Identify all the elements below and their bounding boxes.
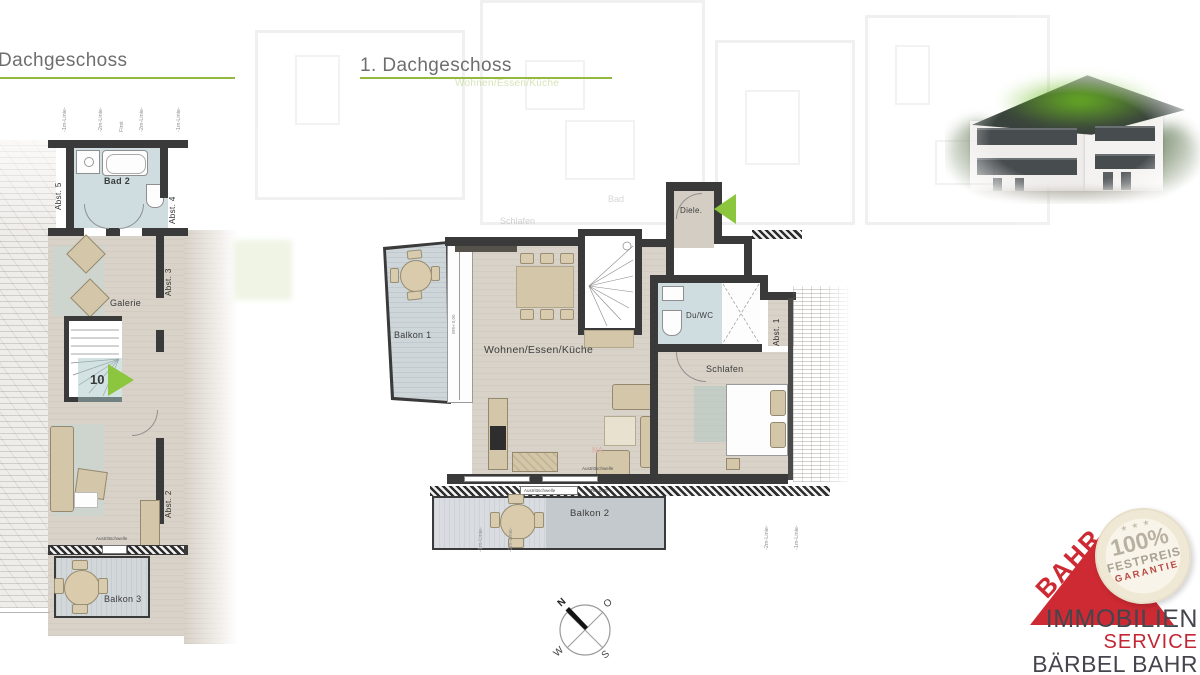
roof-line-label: -2m-Linie- [139, 92, 145, 132]
roof-fade-strip [184, 230, 238, 644]
plan-title-left: Dachgeschoss [0, 50, 127, 72]
dining-chair [560, 253, 574, 264]
window-band [542, 476, 598, 482]
room-label-bad2: Bad 2 [104, 176, 130, 186]
company-logo: BAHR ★ ★ ★ 100% FESTPREIS GARANTIE IMMOB… [1015, 508, 1200, 675]
wall [66, 140, 74, 230]
staircase [578, 229, 642, 335]
balcony-chair [72, 604, 88, 614]
garden-tint [234, 240, 292, 300]
room-label-abst2: Abst. 2 [164, 472, 173, 518]
ground-shadow [965, 190, 1170, 198]
dining-chair [520, 253, 534, 264]
room-label-balkon1: Balkon 1 [394, 330, 431, 340]
balcony-table [500, 504, 536, 540]
wall [156, 236, 164, 298]
company-line3-label: BÄRBEL BAHR [1015, 653, 1198, 675]
roof-line-label: -2m-Linie- [508, 508, 514, 552]
roof-edge-hatch [752, 230, 802, 239]
wall [650, 275, 762, 283]
wall [156, 330, 164, 352]
balcony-chair [431, 266, 440, 281]
room-label-abst5: Abst. 5 [54, 166, 63, 210]
threshold-label: Austrittschwelle [582, 466, 613, 471]
coffee-table [604, 416, 636, 446]
roof-line-label: -1m-Linie- [478, 508, 484, 552]
door-gap [120, 228, 142, 236]
ghost-furniture [745, 90, 800, 165]
roof-line-label: -1m-Linie- [176, 92, 182, 132]
stair-treads-icon [585, 236, 635, 328]
roof-line-label: -2m-Linie- [98, 92, 104, 132]
threshold-hatch [128, 546, 184, 554]
room-label-balkon3: Balkon 3 [104, 594, 141, 604]
dining-chair [540, 253, 554, 264]
wall [48, 228, 188, 236]
entrance-arrow-icon [714, 194, 736, 224]
roof-line-label: First [119, 102, 125, 132]
building-render-illustration [945, 66, 1200, 204]
nightstand [726, 458, 740, 470]
wall [160, 140, 168, 198]
ghost-furniture [895, 45, 930, 105]
window-band [464, 476, 530, 482]
room-label-schlafen: Schlafen [706, 364, 743, 374]
neighbor-edge-line [0, 612, 50, 613]
balcony-chair [490, 512, 500, 528]
brh-label-vertical: BRH 0,00 [451, 298, 456, 334]
roof-hatch-right [793, 286, 855, 482]
unit-arrow-icon [108, 364, 134, 396]
roof-line-label: -1m-Linie- [794, 506, 800, 550]
unit-number: 10 [90, 372, 104, 387]
compass-east-label: O [602, 597, 615, 611]
balcony-table [64, 570, 100, 606]
kitchen-counter [455, 246, 517, 252]
room-label-galerie: Galerie [110, 298, 141, 308]
window-mullion [459, 246, 460, 400]
title-underline-left [0, 77, 235, 79]
balcony-row [1095, 126, 1155, 141]
compass-rose: N O W S [545, 593, 623, 667]
room-label-abst4: Abst. 4 [168, 180, 177, 224]
room-label-wohnen: Wohnen/Essen/Küche [484, 344, 593, 356]
threshold-box [102, 545, 127, 554]
company-line2-label: SERVICE [1015, 632, 1198, 653]
balcony-chair [407, 249, 423, 260]
company-line1-label: IMMOBILIEN [1015, 606, 1198, 632]
balcony-row [977, 158, 1077, 175]
page: Wohnen/Essen/Küche Schlafen Bad Dachgesc… [0, 0, 1200, 675]
roof-line-label: -2m-Linie- [764, 506, 770, 550]
shower-icon [722, 283, 760, 344]
sofa [50, 426, 74, 512]
room-label-balkon2: Balkon 2 [570, 508, 609, 519]
shower [722, 283, 760, 344]
window [1103, 172, 1113, 190]
washer-knob [84, 157, 94, 167]
floorplan-1-dachgeschoss: Balkon 1 BRH 0,00 [370, 158, 860, 608]
pillow [770, 390, 786, 416]
tv [490, 426, 506, 450]
dining-chair [560, 309, 574, 320]
balcony-chair [407, 290, 423, 301]
dining-chair [520, 309, 534, 320]
brh-label: BRH 0,00 [588, 488, 608, 493]
balcony-row [977, 128, 1077, 145]
balcony-chair [390, 268, 399, 283]
compass-north-label: N [556, 596, 569, 609]
plan-title-right: 1. Dachgeschoss [360, 55, 512, 77]
window [1121, 172, 1131, 190]
sink [662, 286, 684, 301]
room-label-diele: Diele. [680, 206, 702, 215]
room-label-duwc: Du/WC [686, 311, 713, 320]
balcony-chair [54, 578, 64, 594]
balcony-table [400, 260, 432, 292]
na-label: NA [592, 446, 616, 456]
threshold-hatch [430, 486, 830, 496]
title-underline-right [360, 77, 612, 79]
threshold-label: Austrittschwelle [524, 488, 555, 493]
balcony-chair [534, 512, 544, 528]
coffee-table [74, 492, 98, 508]
bathtub-basin [106, 154, 146, 174]
wall [650, 344, 762, 352]
room-label-abst3: Abst. 3 [164, 250, 173, 296]
wall [650, 275, 658, 352]
toilet [662, 310, 682, 336]
threshold-label: Austrittschwelle [96, 536, 127, 541]
dining-table [516, 266, 574, 308]
lowboard [512, 452, 558, 472]
floorplan-dachgeschoss: -1m-Linie- -2m-Linie- First -2m-Linie- -… [0, 88, 330, 633]
roof-line-label: -1m-Linie- [62, 92, 68, 132]
room-label-abst1: Abst. 1 [772, 304, 781, 346]
roof-green-highlight [995, 70, 1165, 130]
compass-west-label: W [552, 644, 567, 659]
wall [445, 237, 581, 246]
threshold-hatch [50, 546, 102, 554]
pillow [770, 422, 786, 448]
compass-south-label: S [600, 648, 613, 661]
company-name-block: IMMOBILIEN SERVICE BÄRBEL BAHR [1015, 606, 1198, 675]
balcony-chair [98, 578, 108, 594]
balcony-row [1095, 154, 1155, 169]
rug [694, 386, 726, 442]
wall [650, 352, 658, 480]
balcony-chair [72, 560, 88, 570]
compass-icon: N O W S [545, 593, 623, 667]
balcony-chair [508, 494, 524, 504]
ghost-room-label-wohnen: Wohnen/Essen/Küche [455, 78, 559, 89]
dining-chair [540, 309, 554, 320]
